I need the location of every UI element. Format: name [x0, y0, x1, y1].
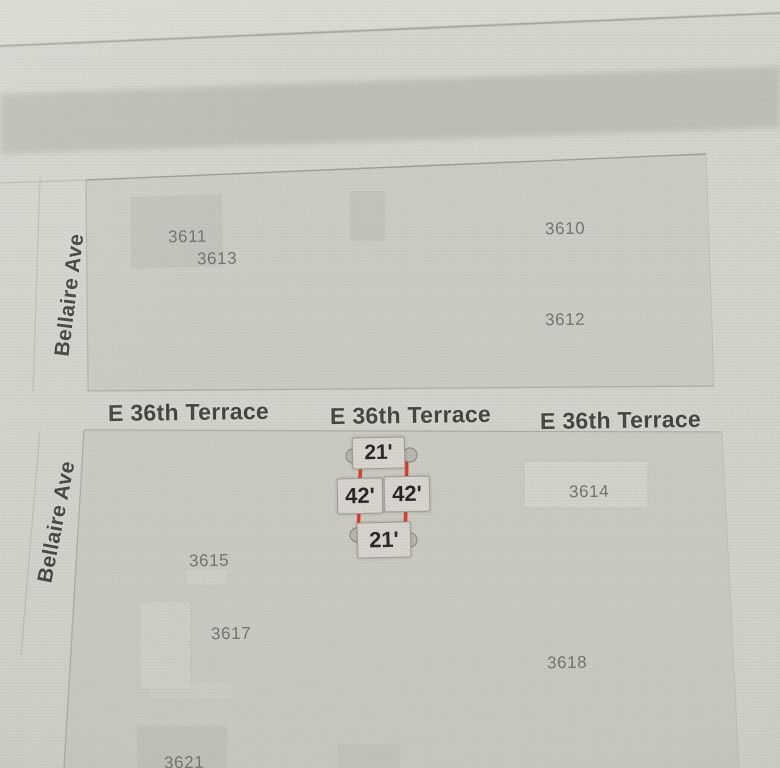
screen-top-shadow-band: [0, 66, 780, 154]
parcel-label-3615: 3615: [189, 551, 230, 572]
map-canvas[interactable]: Bellaire Ave Bellaire Ave E 36th Terrace…: [0, 0, 780, 768]
measure-label-bottom-width: 21': [357, 521, 412, 558]
map-layer: [0, 0, 780, 768]
street-label-e36th-terrace-1: E 36th Terrace: [108, 398, 269, 427]
bellaire-west-edge-lower: [21, 430, 40, 655]
building-footprint-small: [350, 191, 385, 241]
measure-label-right-depth: 42': [384, 476, 431, 513]
measure-label-left-depth: 42': [337, 478, 384, 515]
parcel-label-3614: 3614: [569, 482, 610, 503]
parcel-label-3613: 3613: [197, 249, 238, 270]
building-footprint-3617: [140, 601, 191, 689]
building-footprint-3615: [186, 569, 228, 586]
city-block-north[interactable]: [86, 154, 714, 391]
parcel-label-3621: 3621: [164, 753, 205, 768]
parcel-label-3611: 3611: [168, 227, 207, 248]
building-footprint-bottom: [337, 744, 400, 768]
street-label-e36th-terrace-3: E 36th Terrace: [540, 406, 701, 435]
parcel-label-3610: 3610: [545, 219, 586, 240]
parcel-label-3612: 3612: [545, 310, 586, 331]
building-footprint-strip: [150, 682, 233, 698]
map-margin-line: [0, 180, 86, 183]
screen-top-highlight: [0, 0, 780, 46]
parcel-label-3618: 3618: [547, 653, 588, 674]
bellaire-west-edge-upper: [33, 177, 40, 391]
measure-label-top-width: 21': [352, 436, 406, 469]
street-label-e36th-terrace-2: E 36th Terrace: [330, 401, 491, 430]
parcel-label-3617: 3617: [211, 624, 252, 645]
